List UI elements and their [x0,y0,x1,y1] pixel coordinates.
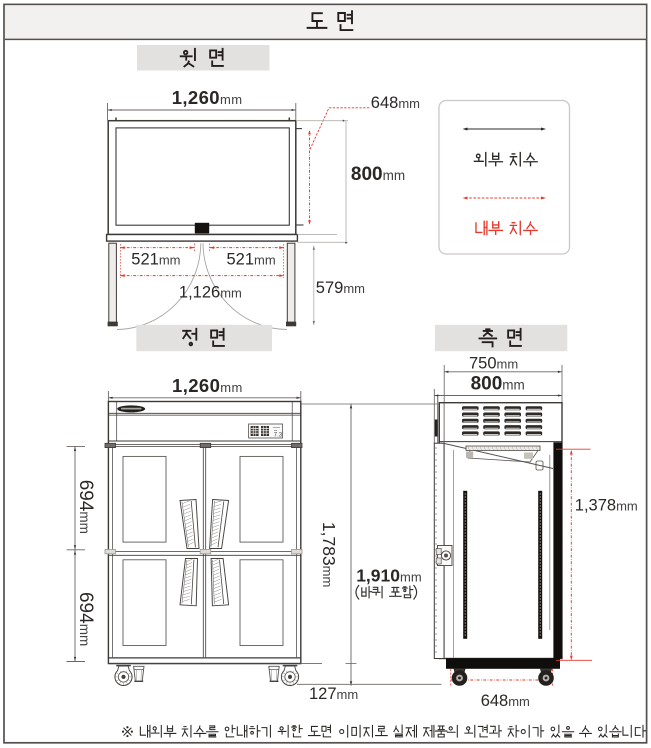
svg-text:1,378mm: 1,378mm [575,497,638,515]
svg-text:7.3: 7.3 [274,433,283,439]
svg-text:648mm: 648mm [481,692,530,710]
svg-text:694mm: 694mm [75,480,96,534]
svg-text:694mm: 694mm [75,592,96,646]
svg-text:1,126mm: 1,126mm [179,284,242,302]
svg-text:750mm: 750mm [469,355,518,373]
svg-text:1,260mm: 1,260mm [172,375,243,396]
svg-text:800mm: 800mm [351,164,405,185]
svg-text:800mm: 800mm [471,374,525,395]
svg-text:1,783mm: 1,783mm [319,522,339,587]
svg-text:1,910mm: 1,910mm [356,566,421,586]
svg-text:579mm: 579mm [316,279,365,297]
svg-text:127mm: 127mm [309,685,358,703]
svg-text:1,260mm: 1,260mm [172,87,243,108]
svg-text:648mm: 648mm [371,94,420,112]
svg-text:521mm: 521mm [131,251,180,269]
svg-text:521mm: 521mm [227,251,276,269]
